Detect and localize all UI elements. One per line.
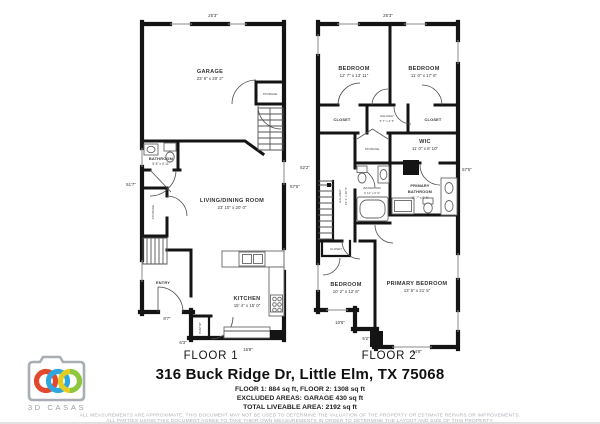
- floor1-corner-block: [270, 330, 284, 340]
- floor1-kitchen-label: KITCHEN: [234, 296, 261, 302]
- floor2-wic-dims: 11' 0" x 8' 10": [412, 146, 439, 151]
- floor1-pantry-label: PANTRY: [198, 322, 202, 334]
- floor2-bedroom1-label: BEDROOM: [338, 66, 369, 72]
- floor2-closet3-label: CLOSET: [330, 247, 342, 251]
- floor2-hallway-dims: 10' 2" x 20' 5": [344, 187, 348, 205]
- floor1-living-dims: 23' 10" x 20' 0": [218, 205, 247, 210]
- floor1-living-label: LIVING/DINING ROOM: [200, 198, 264, 204]
- floor2-bathroom-label: BATHROOM: [363, 186, 381, 190]
- floor2-title: FLOOR 2: [362, 350, 417, 362]
- floor2-storage-label: STORAGE: [365, 147, 380, 151]
- logo: 3D CASAS: [28, 357, 86, 412]
- floor1-entry-label: ENTRY: [156, 280, 170, 285]
- floor1-storage-label: STORAGE: [151, 205, 155, 220]
- floor1-dim-top: 25'3": [208, 13, 218, 18]
- floor1-garage-storage-label: STORAGE: [263, 92, 278, 96]
- floor1-plan: GARAGE 23' 8" x 20' 2" STORAGE BATHROOM …: [126, 13, 300, 362]
- floor2-dim-top: 25'3": [383, 13, 393, 18]
- floor2-dim-b2: 5'2": [362, 336, 370, 341]
- floor1-dim-entry: 8'7": [163, 316, 171, 321]
- floor1-bathroom-dims: 5' 8" x 4' 11": [152, 162, 169, 166]
- floor-plan-svg: GARAGE 23' 8" x 20' 2" STORAGE BATHROOM …: [0, 0, 600, 424]
- floor2-primary-bedroom-label: PRIMARY BEDROOM: [387, 281, 448, 287]
- floor2-stairs: [318, 183, 333, 239]
- floor2-primary-bath-label2: BATHROOM: [408, 189, 432, 194]
- floor-plan-document: GARAGE 23' 8" x 20' 2" STORAGE BATHROOM …: [0, 0, 600, 424]
- floor1-door-arcs: [150, 80, 281, 339]
- floor2-hallway-label: HALLWAY: [338, 189, 342, 203]
- floor1-dim-mid: 6'3": [179, 340, 187, 345]
- areas-line-1: FLOOR 1: 884 sq ft, FLOOR 2: 1308 sq ft: [235, 386, 366, 393]
- disclaimer-line-1: ALL MEASUREMENTS ARE APPROXIMATE. THIS D…: [80, 413, 521, 419]
- floor2-bedroom1-dims: 12' 7" x 13' 11": [340, 73, 369, 78]
- areas-line-2: EXCLUDED AREAS: GARAGE 430 sq ft: [237, 395, 364, 402]
- floor2-plan: BEDROOM 12' 7" x 13' 11" BEDROOM 11' 0" …: [300, 13, 472, 362]
- floor2-bedroom3-label: BEDROOM: [330, 282, 361, 288]
- floor2-storage-bifold: [318, 129, 388, 181]
- floor2-closet1-label: CLOSET: [334, 117, 351, 122]
- floor1-garage-dims: 23' 8" x 20' 2": [197, 76, 224, 81]
- floor1-dim-bottom: 16'8": [243, 347, 253, 352]
- floor2-primary-bath-dims: 11' 7" x 9' 9": [411, 196, 428, 200]
- floor2-corner-block: [370, 331, 383, 347]
- floor2-dim-right: 57'5": [462, 167, 472, 172]
- floor1-dim-left: 51'7": [126, 182, 136, 187]
- floor2-wic-label: WIC: [419, 139, 431, 145]
- floor2-bathroom-dims: 4' 11" x 9' 9": [364, 191, 380, 195]
- floor1-kitchen-dims: 15' 4" x 15' 0": [234, 303, 261, 308]
- floor2-dim-b1: 10'6": [335, 320, 345, 325]
- floor2-dim-left: 52'2": [300, 165, 310, 170]
- floor2-primary-bedroom-dims: 13' 5" x 21' 5": [404, 288, 431, 293]
- areas-line-3: TOTAL LIVEABLE AREA: 2192 sq ft: [243, 404, 358, 411]
- footer: 316 Buck Ridge Dr, Little Elm, TX 75068 …: [80, 366, 521, 424]
- floor2-hall-small-label: HALLWAY: [380, 114, 394, 118]
- floor2-bedroom3-dims: 10' 2" x 12' 8": [333, 289, 360, 294]
- logo-text: 3D CASAS: [28, 403, 86, 412]
- floor1-bathroom-label: BATHROOM: [149, 156, 173, 161]
- floor2-shaft-block: [403, 160, 419, 175]
- floor2-bedroom2-label: BEDROOM: [408, 66, 439, 72]
- floor1-stairs-left: [143, 238, 167, 264]
- floor1-garage-label: GARAGE: [197, 69, 223, 75]
- floor1-dim-right: 57'5": [290, 184, 300, 189]
- floor1-title: FLOOR 1: [184, 350, 239, 362]
- address-line: 316 Buck Ridge Dr, Little Elm, TX 75068: [156, 366, 445, 383]
- floor2-primary-bath-label1: PRIMARY: [410, 183, 429, 188]
- floor2-bedroom2-dims: 11' 0" x 17' 6": [411, 73, 438, 78]
- floor2-closet2-label: CLOSET: [425, 117, 442, 122]
- floor2-hall-small-dims: 5' 7" x 4' 5": [380, 119, 395, 123]
